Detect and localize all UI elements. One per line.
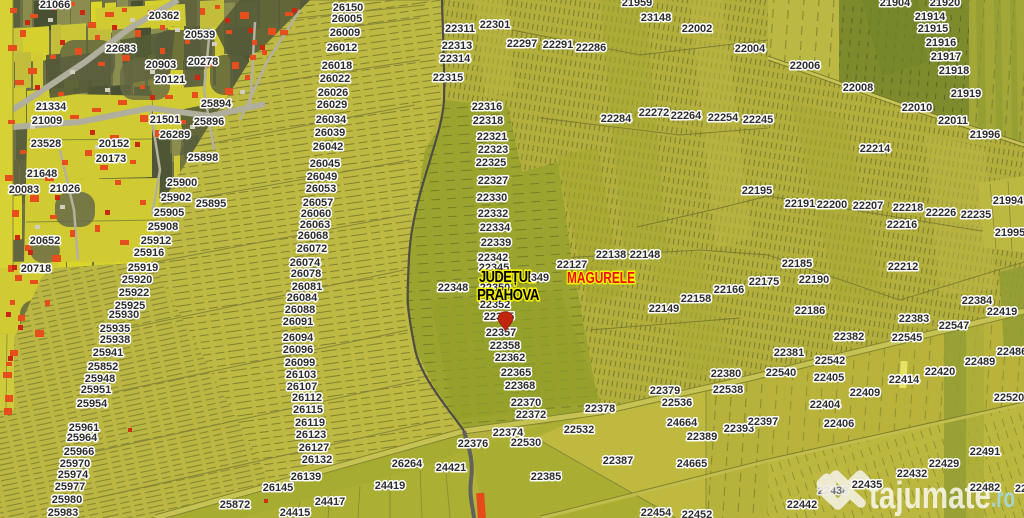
svg-text:25916: 25916 [134, 247, 165, 259]
svg-text:25896: 25896 [194, 116, 225, 128]
svg-text:22397: 22397 [748, 416, 779, 428]
svg-text:22409: 22409 [850, 387, 881, 399]
svg-text:21919: 21919 [951, 88, 982, 100]
svg-text:26127: 26127 [299, 442, 330, 454]
svg-text:26045: 26045 [310, 158, 341, 170]
svg-text:22370: 22370 [511, 397, 542, 409]
svg-text:22330: 22330 [477, 192, 508, 204]
svg-text:25919: 25919 [128, 262, 159, 274]
svg-text:25938: 25938 [100, 334, 131, 346]
svg-text:25966: 25966 [64, 446, 95, 458]
svg-text:25894: 25894 [201, 98, 232, 110]
svg-text:22382: 22382 [834, 331, 865, 343]
svg-text:22489: 22489 [965, 356, 996, 368]
svg-text:22314: 22314 [440, 53, 471, 65]
svg-text:22216: 22216 [887, 219, 918, 231]
svg-text:25922: 25922 [119, 287, 150, 299]
svg-text:22235: 22235 [961, 209, 992, 221]
svg-text:22379: 22379 [650, 385, 681, 397]
svg-text:22002: 22002 [682, 23, 713, 35]
svg-text:22284: 22284 [601, 113, 632, 125]
svg-text:20083: 20083 [9, 184, 40, 196]
svg-text:22435: 22435 [852, 479, 883, 491]
svg-text:25908: 25908 [148, 221, 179, 233]
svg-text:21904: 21904 [880, 0, 911, 9]
svg-text:20173: 20173 [96, 153, 127, 165]
svg-text:26042: 26042 [313, 141, 344, 153]
svg-text:22348: 22348 [438, 282, 469, 294]
svg-text:26264: 26264 [392, 458, 423, 470]
svg-text:26094: 26094 [283, 332, 314, 344]
svg-text:22297: 22297 [507, 38, 538, 50]
svg-text:22175: 22175 [749, 276, 780, 288]
svg-text:26112: 26112 [292, 392, 322, 404]
svg-text:24415: 24415 [280, 507, 311, 518]
svg-text:22212: 22212 [888, 261, 919, 273]
svg-text:20903: 20903 [146, 59, 177, 71]
svg-text:22536: 22536 [662, 397, 693, 409]
svg-text:21009: 21009 [32, 115, 63, 127]
svg-text:22419: 22419 [987, 306, 1018, 318]
svg-text:22491: 22491 [970, 446, 1001, 458]
svg-text:26119: 26119 [295, 417, 325, 429]
svg-text:21996: 21996 [970, 129, 1001, 141]
svg-text:22011: 22011 [938, 115, 968, 127]
svg-text:26096: 26096 [283, 344, 314, 356]
svg-text:22380: 22380 [711, 368, 742, 380]
svg-text:20121: 20121 [155, 74, 186, 86]
svg-text:22316: 22316 [472, 101, 503, 113]
svg-text:26068: 26068 [298, 230, 329, 242]
svg-text:26018: 26018 [322, 60, 353, 72]
svg-text:22: 22 [1015, 483, 1024, 495]
svg-text:26049: 26049 [307, 171, 338, 183]
svg-text:22452: 22452 [682, 509, 713, 518]
svg-text:22166: 22166 [714, 284, 745, 296]
svg-text:26012: 26012 [327, 42, 358, 54]
svg-text:22158: 22158 [681, 293, 712, 305]
svg-text:26009: 26009 [330, 27, 361, 39]
svg-text:22191: 22191 [785, 198, 816, 210]
svg-text:22149: 22149 [649, 303, 680, 315]
svg-text:22376: 22376 [458, 438, 489, 450]
svg-text:22286: 22286 [576, 42, 607, 54]
svg-text:21994: 21994 [993, 195, 1024, 207]
svg-text:22385: 22385 [531, 471, 562, 483]
svg-text:22339: 22339 [481, 237, 512, 249]
svg-text:26005: 26005 [332, 13, 363, 25]
svg-text:21918: 21918 [939, 65, 970, 77]
svg-text:22542: 22542 [815, 355, 846, 367]
svg-text:20539: 20539 [185, 29, 216, 41]
svg-text:26029: 26029 [317, 99, 348, 111]
svg-text:25980: 25980 [52, 494, 83, 506]
svg-text:22291: 22291 [543, 39, 574, 51]
svg-text:22389: 22389 [687, 431, 718, 443]
svg-text:PRAHOVA: PRAHOVA [477, 287, 539, 304]
svg-text:21648: 21648 [27, 168, 58, 180]
svg-text:22547: 22547 [939, 320, 970, 332]
svg-text:23148: 23148 [641, 12, 672, 24]
svg-text:22368: 22368 [505, 380, 536, 392]
svg-text:22372: 22372 [516, 409, 547, 421]
svg-text:25872: 25872 [220, 499, 251, 511]
svg-text:20718: 20718 [21, 263, 52, 275]
svg-text:22405: 22405 [814, 372, 845, 384]
svg-text:22313: 22313 [442, 40, 473, 52]
svg-text:25941: 25941 [93, 347, 124, 359]
svg-text:21334: 21334 [36, 101, 67, 113]
svg-text:20152: 20152 [99, 138, 130, 150]
svg-text:26115: 26115 [293, 404, 323, 416]
svg-text:22185: 22185 [782, 258, 813, 270]
svg-text:21959: 21959 [622, 0, 653, 9]
svg-text:22442: 22442 [787, 499, 818, 511]
svg-text:26132: 26132 [302, 454, 333, 466]
svg-text:22378: 22378 [585, 403, 616, 415]
svg-text:22362: 22362 [495, 352, 526, 364]
svg-text:26289: 26289 [160, 129, 191, 141]
svg-text:22272: 22272 [639, 107, 670, 119]
svg-text:22381: 22381 [774, 347, 805, 359]
svg-text:21916: 21916 [926, 37, 957, 49]
svg-text:22004: 22004 [735, 43, 766, 55]
svg-text:22195: 22195 [742, 185, 773, 197]
svg-text:22432: 22432 [897, 468, 928, 480]
svg-text:22520: 22520 [994, 392, 1024, 404]
svg-text:21914: 21914 [915, 11, 946, 23]
svg-text:22245: 22245 [743, 114, 774, 126]
svg-text:22311: 22311 [445, 23, 475, 35]
svg-text:22006: 22006 [790, 60, 821, 72]
svg-text:24665: 24665 [677, 458, 708, 470]
svg-text:22406: 22406 [824, 418, 855, 430]
svg-text:22532: 22532 [564, 424, 595, 436]
svg-text:21917: 21917 [931, 51, 962, 63]
svg-text:22323: 22323 [478, 144, 509, 156]
svg-text:26091: 26091 [283, 316, 314, 328]
svg-text:22383: 22383 [899, 313, 930, 325]
svg-text:21915: 21915 [918, 23, 949, 35]
svg-text:22358: 22358 [490, 340, 521, 352]
svg-text:21995: 21995 [995, 227, 1024, 239]
svg-text:26078: 26078 [291, 268, 322, 280]
svg-text:22264: 22264 [671, 110, 702, 122]
svg-text:22538: 22538 [713, 384, 744, 396]
svg-text:22486: 22486 [997, 346, 1024, 358]
svg-text:25852: 25852 [88, 361, 119, 373]
svg-text:26084: 26084 [287, 292, 318, 304]
svg-text:25900: 25900 [167, 177, 198, 189]
svg-text:22190: 22190 [799, 274, 830, 286]
svg-text:22207: 22207 [853, 200, 884, 212]
svg-text:22357: 22357 [486, 327, 517, 339]
svg-text:21026: 21026 [50, 183, 81, 195]
svg-text:22404: 22404 [810, 399, 841, 411]
svg-text:24421: 24421 [436, 462, 467, 474]
svg-text:JUDEȚUL: JUDEȚUL [479, 269, 535, 286]
svg-text:23528: 23528 [31, 138, 62, 150]
svg-text:22318: 22318 [473, 115, 504, 127]
svg-text:26022: 26022 [320, 73, 351, 85]
svg-text:25902: 25902 [161, 192, 192, 204]
svg-text:22301: 22301 [480, 19, 511, 31]
svg-text:25954: 25954 [77, 398, 108, 410]
svg-text:22387: 22387 [603, 455, 634, 467]
svg-text:22332: 22332 [478, 208, 509, 220]
svg-text:22429: 22429 [929, 458, 960, 470]
svg-text:22327: 22327 [478, 175, 509, 187]
svg-text:25898: 25898 [188, 152, 219, 164]
svg-text:24419: 24419 [375, 480, 406, 492]
svg-text:22540: 22540 [766, 367, 797, 379]
svg-text:22683: 22683 [106, 43, 137, 55]
svg-text:26139: 26139 [291, 471, 322, 483]
svg-text:22482: 22482 [970, 482, 1001, 494]
svg-text:20362: 20362 [149, 10, 180, 22]
svg-text:22008: 22008 [843, 82, 874, 94]
svg-text:22226: 22226 [926, 207, 957, 219]
svg-text:25905: 25905 [154, 207, 185, 219]
svg-text:26123: 26123 [296, 429, 327, 441]
svg-text:22325: 22325 [476, 157, 507, 169]
svg-text:22321: 22321 [477, 131, 508, 143]
svg-text:22218: 22218 [893, 202, 924, 214]
svg-text:21066: 21066 [40, 0, 71, 11]
svg-text:22254: 22254 [708, 112, 739, 124]
svg-text:22200: 22200 [817, 199, 848, 211]
svg-text:22010: 22010 [902, 102, 933, 114]
svg-text:26145: 26145 [263, 482, 294, 494]
svg-text:22420: 22420 [925, 366, 956, 378]
svg-text:21920: 21920 [930, 0, 961, 9]
svg-text:22315: 22315 [433, 72, 464, 84]
svg-text:26034: 26034 [316, 114, 347, 126]
svg-text:21501: 21501 [150, 114, 181, 126]
svg-text:25895: 25895 [196, 198, 227, 210]
svg-text:26072: 26072 [297, 243, 328, 255]
svg-text:25983: 25983 [48, 507, 79, 518]
svg-text:22138: 22138 [596, 249, 627, 261]
svg-text:26053: 26053 [306, 183, 337, 195]
svg-text:25974: 25974 [58, 469, 89, 481]
svg-text:20652: 20652 [30, 235, 61, 247]
svg-text:26039: 26039 [315, 127, 346, 139]
svg-text:25977: 25977 [55, 481, 86, 493]
svg-text:349: 349 [531, 272, 549, 284]
svg-text:24664: 24664 [667, 417, 698, 429]
svg-text:25920: 25920 [122, 274, 153, 286]
svg-text:22148: 22148 [630, 249, 661, 261]
svg-text:25930: 25930 [109, 309, 140, 321]
svg-text:22365: 22365 [501, 367, 532, 379]
svg-text:MAGURELE: MAGURELE [567, 270, 635, 287]
svg-text:22414: 22414 [889, 374, 920, 386]
svg-text:22334: 22334 [480, 222, 511, 234]
svg-text:20278: 20278 [188, 56, 219, 68]
svg-text:25964: 25964 [67, 432, 98, 444]
svg-text:22214: 22214 [860, 143, 891, 155]
svg-text:24417: 24417 [315, 496, 346, 508]
svg-text:26026: 26026 [318, 87, 349, 99]
svg-text:25951: 25951 [81, 384, 112, 396]
svg-text:26103: 26103 [286, 369, 317, 381]
svg-text:22530: 22530 [511, 437, 542, 449]
svg-text:25912: 25912 [141, 235, 172, 247]
svg-text:22454: 22454 [641, 507, 672, 518]
svg-text:26088: 26088 [285, 304, 316, 316]
svg-text:22545: 22545 [892, 332, 923, 344]
svg-text:26099: 26099 [285, 357, 316, 369]
svg-text:22186: 22186 [795, 305, 826, 317]
